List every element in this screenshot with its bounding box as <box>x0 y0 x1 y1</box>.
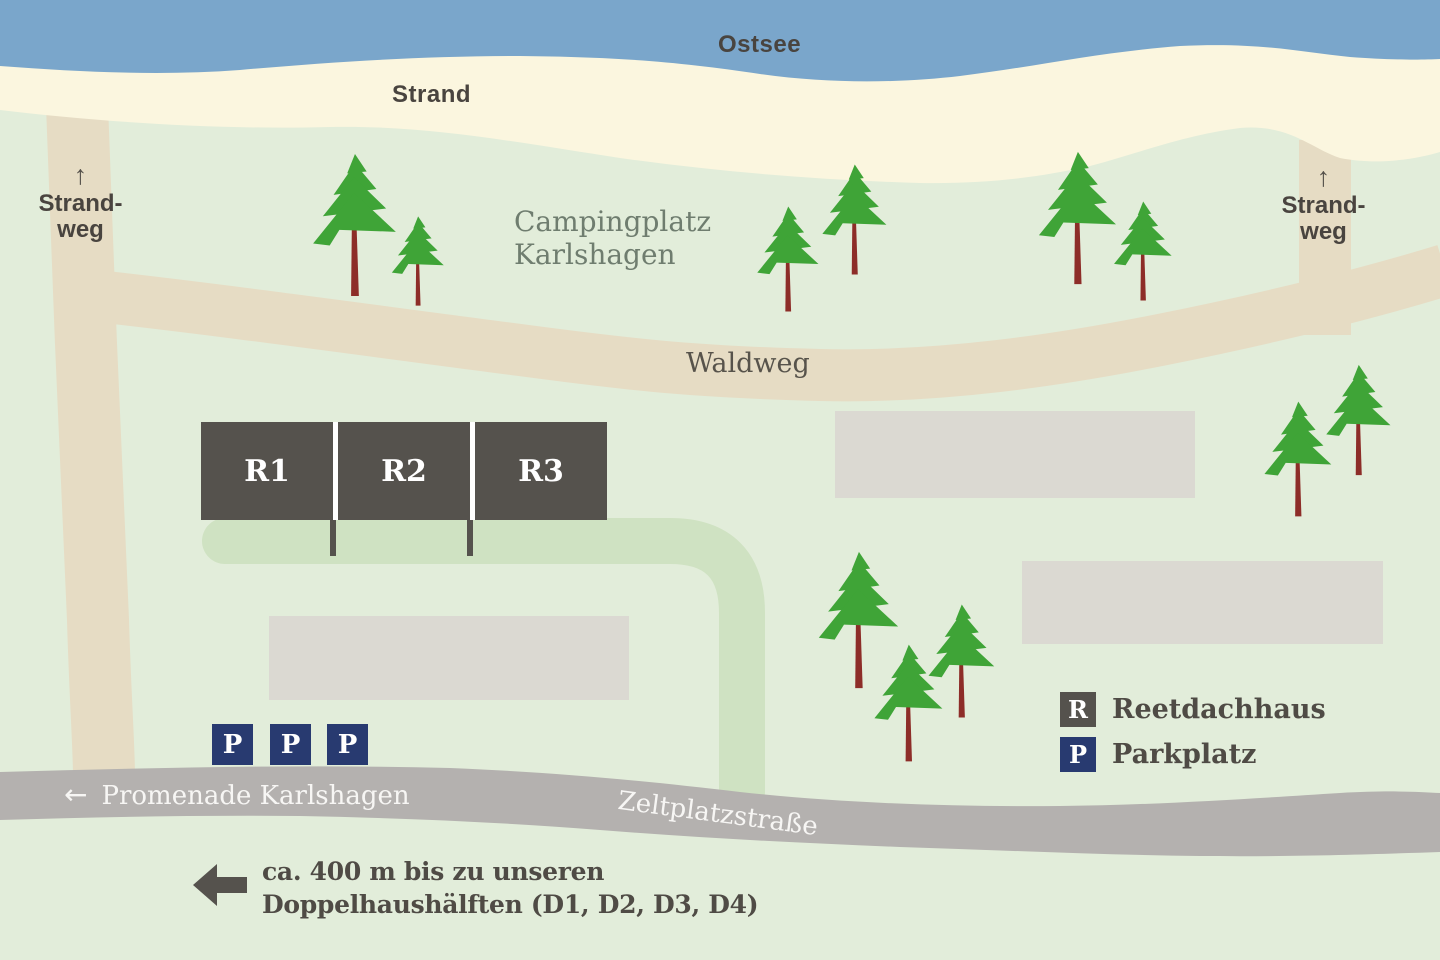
legend-label: Parkplatz <box>1112 739 1256 770</box>
reetdachhaus-symbol: R <box>1060 692 1096 727</box>
campsite-label-line1: Campingplatz <box>514 206 711 239</box>
pine-tree-icon <box>1036 150 1118 286</box>
pine-tree-icon <box>926 603 996 719</box>
parking-icon: P <box>327 724 368 765</box>
strandweg-left-label: ↑ Strand- weg <box>18 162 143 243</box>
pine-tree-icon <box>310 152 398 298</box>
pine-tree-icon <box>820 163 888 276</box>
left-arrow-icon: ← <box>64 778 87 811</box>
building-divider-post <box>330 520 336 556</box>
left-arrow-icon <box>193 864 247 908</box>
strandweg-label-line1: Strand- <box>18 191 143 217</box>
legend-item-reetdachhaus: R Reetdachhaus <box>1060 692 1326 727</box>
promenade-label-text: Promenade Karlshagen <box>101 781 409 811</box>
sea-label: Ostsee <box>718 31 801 59</box>
legend-item-parkplatz: P Parkplatz <box>1060 737 1256 772</box>
up-arrow-icon: ↑ <box>1261 164 1386 191</box>
pine-tree-icon <box>1262 400 1333 518</box>
beach-label: Strand <box>392 81 471 109</box>
campsite-label-line2: Karlshagen <box>514 239 711 272</box>
parkplatz-symbol: P <box>1060 737 1096 772</box>
parking-icon: P <box>212 724 253 765</box>
waldweg-label: Waldweg <box>686 348 810 379</box>
pine-tree-icon <box>1112 200 1173 302</box>
building-area <box>1022 561 1383 644</box>
building-r3: R3 <box>475 422 607 520</box>
building-area <box>269 616 629 700</box>
distance-note-line2: Doppelhaushälften (D1, D2, D3, D4) <box>262 889 758 922</box>
distance-note: ca. 400 m bis zu unseren Doppelhaushälft… <box>262 856 758 921</box>
parking-icon: P <box>270 724 311 765</box>
strandweg-label-line2: weg <box>1261 219 1386 245</box>
pine-tree-icon <box>1324 363 1392 477</box>
legend-label: Reetdachhaus <box>1112 694 1326 725</box>
strandweg-label-line2: weg <box>18 217 143 243</box>
building-divider-post <box>467 520 473 556</box>
pine-tree-icon <box>390 215 445 307</box>
campsite-label: Campingplatz Karlshagen <box>514 206 711 272</box>
strandweg-label-line1: Strand- <box>1261 193 1386 219</box>
building-r2: R2 <box>338 422 470 520</box>
pine-tree-icon <box>755 205 820 313</box>
building-area <box>835 411 1195 498</box>
strandweg-right-label: ↑ Strand- weg <box>1261 164 1386 245</box>
promenade-road-label: ←Promenade Karlshagen <box>64 778 410 811</box>
reetdachhaus-buildings: R1 R2 R3 <box>201 422 607 520</box>
building-r1: R1 <box>201 422 333 520</box>
distance-note-line1: ca. 400 m bis zu unseren <box>262 856 758 889</box>
campsite-map: Ostsee Strand ↑ Strand- weg ↑ Strand- we… <box>0 0 1440 960</box>
up-arrow-icon: ↑ <box>18 162 143 189</box>
